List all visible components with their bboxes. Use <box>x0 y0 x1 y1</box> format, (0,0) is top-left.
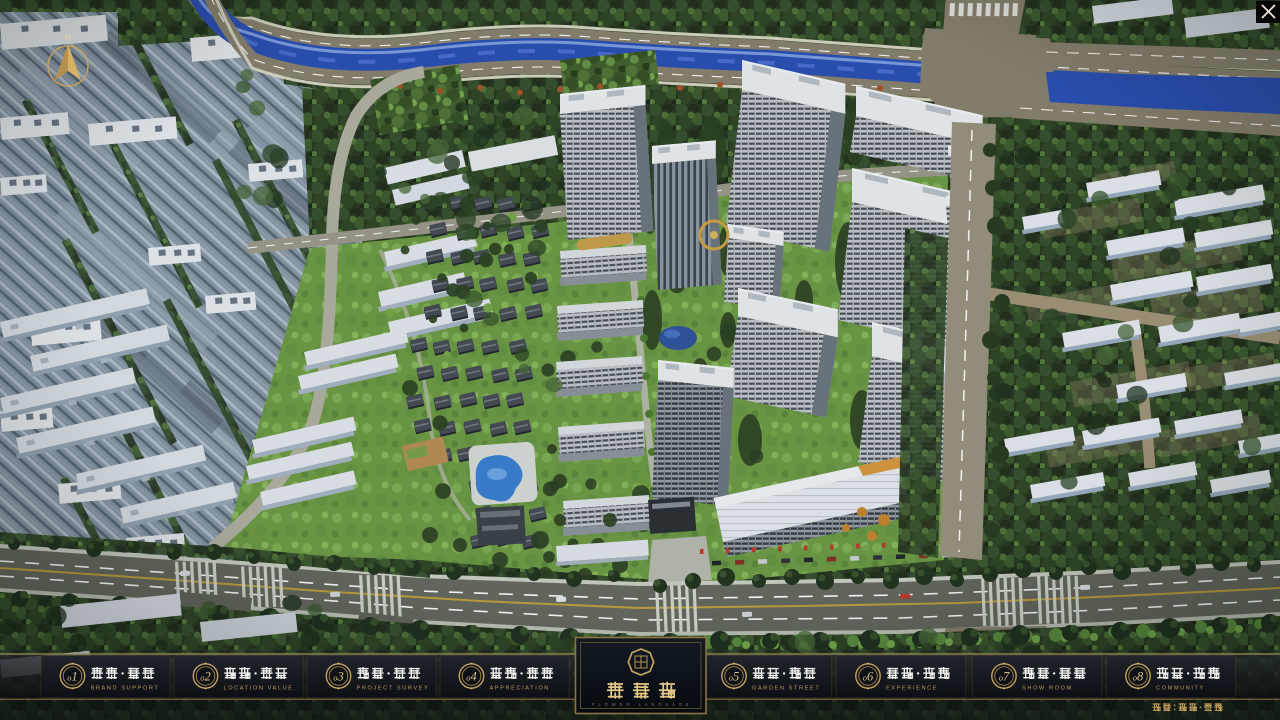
svg-text:o8: o8 <box>1133 670 1144 684</box>
svg-text:SHOW ROOM: SHOW ROOM <box>1022 686 1073 692</box>
svg-text:o5: o5 <box>729 670 740 684</box>
svg-text:EXPERIENCE: EXPERIENCE <box>886 686 938 692</box>
svg-text:APPRECIATION: APPRECIATION <box>490 686 550 692</box>
svg-text:F L O W E R · L A N G U A G E: F L O W E R · L A N G U A G E <box>592 702 690 707</box>
svg-text:COMMUNITY: COMMUNITY <box>1156 686 1205 692</box>
svg-text:o1: o1 <box>67 670 78 684</box>
svg-text:PROJECT SURVEY: PROJECT SURVEY <box>357 686 430 692</box>
svg-text:GARDEN STREET: GARDEN STREET <box>752 686 820 692</box>
svg-text:o2: o2 <box>200 670 211 684</box>
svg-text:o6: o6 <box>863 670 874 684</box>
svg-text:o3: o3 <box>333 670 344 684</box>
svg-text:BRAND SUPPORT: BRAND SUPPORT <box>91 686 160 692</box>
svg-text:o4: o4 <box>466 670 477 684</box>
svg-text:N: N <box>65 32 72 42</box>
svg-text:o7: o7 <box>999 670 1010 684</box>
svg-text:LOCATION VALUE: LOCATION VALUE <box>224 686 294 692</box>
